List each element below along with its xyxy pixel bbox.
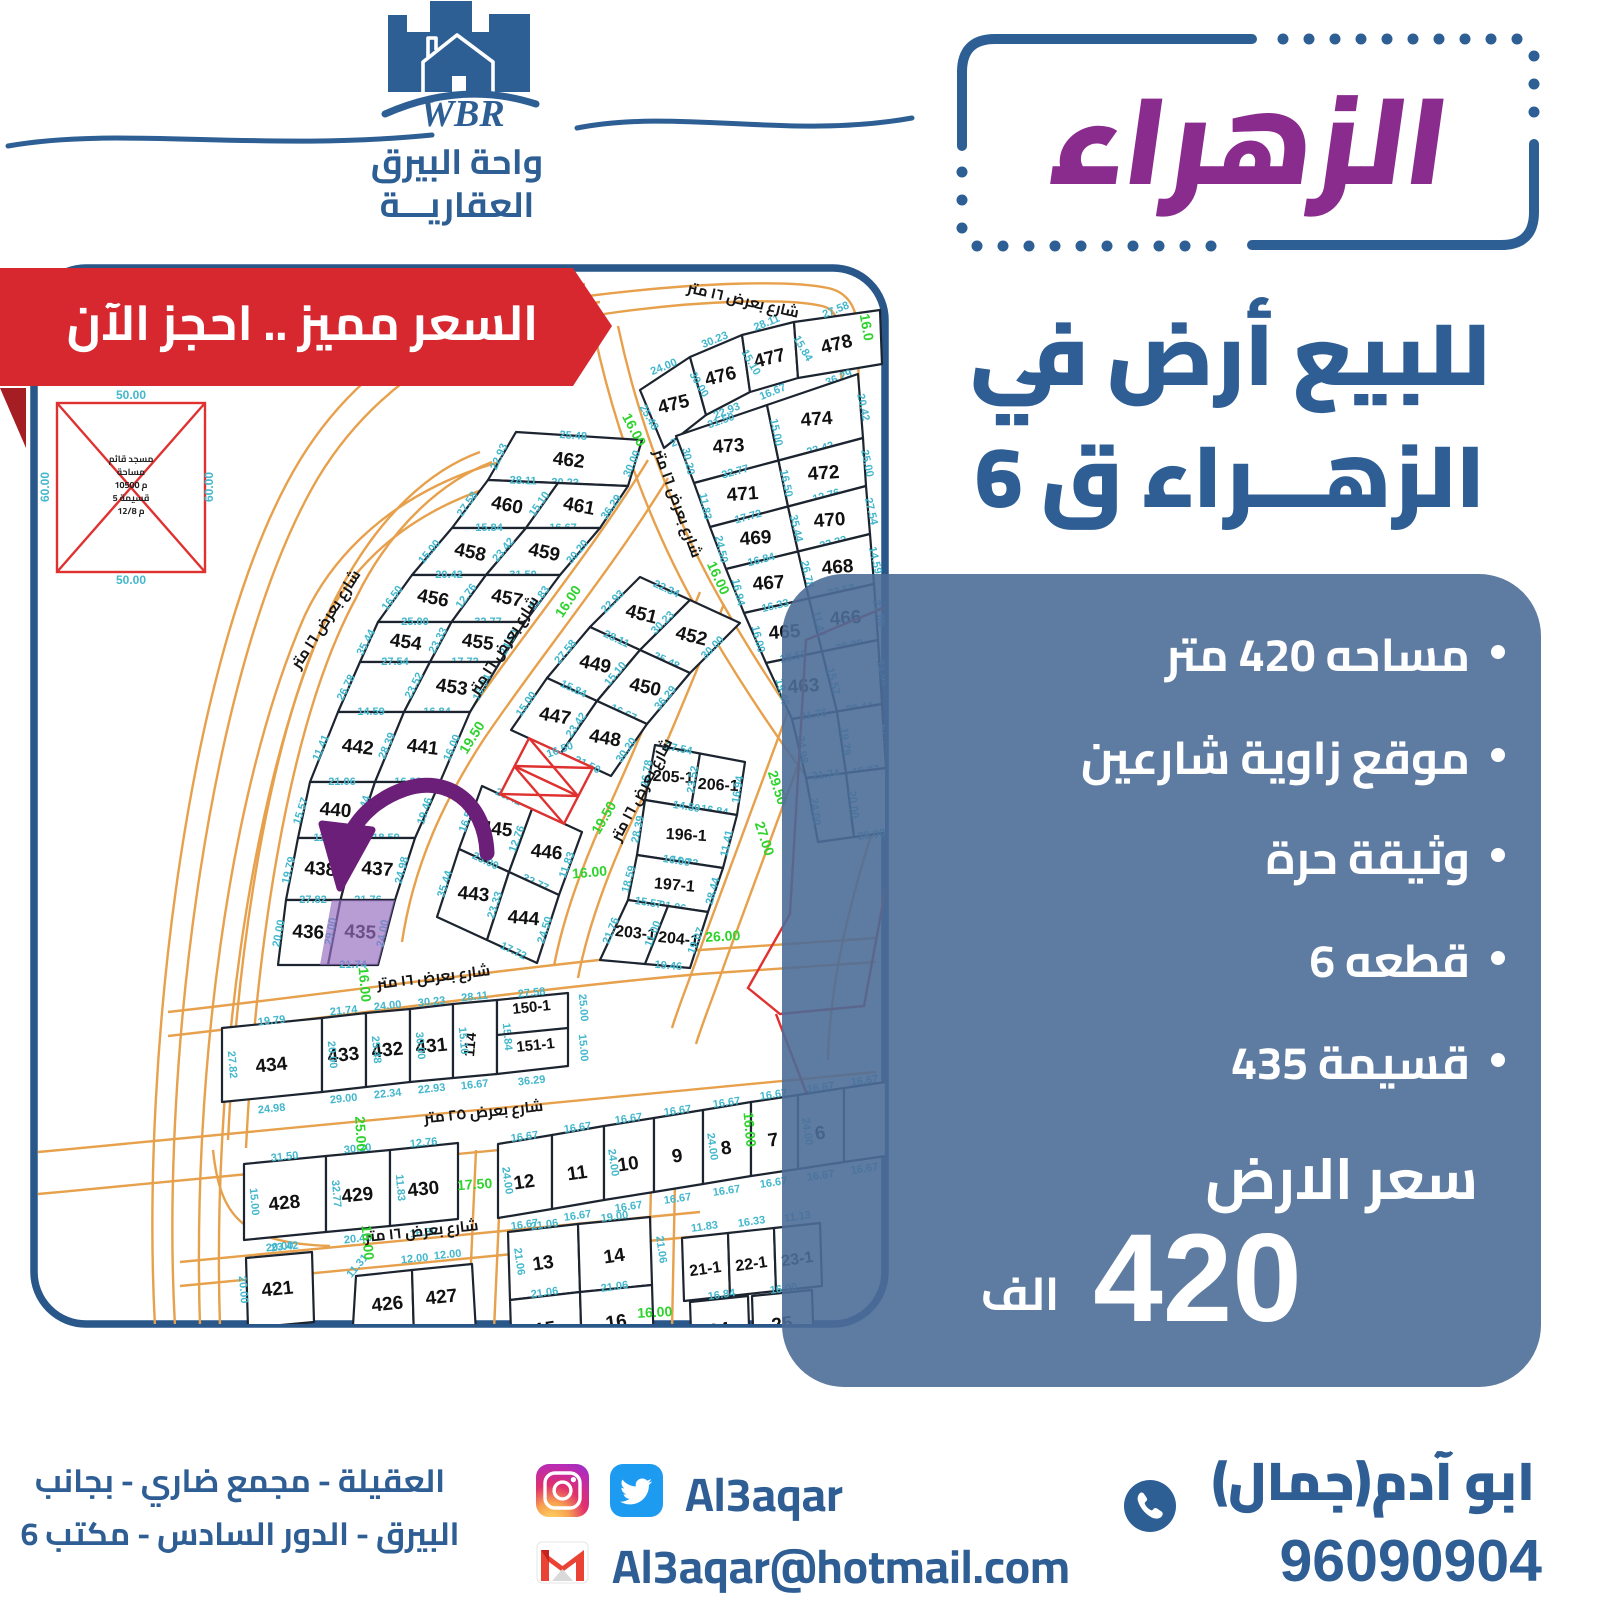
svg-text:12/8 م: 12/8 م — [117, 503, 144, 520]
svg-text:469: 469 — [739, 527, 772, 550]
svg-text:430: 430 — [407, 1177, 441, 1201]
svg-text:470: 470 — [813, 509, 846, 532]
svg-text:21.06: 21.06 — [328, 776, 356, 788]
svg-text:15.00: 15.00 — [247, 1188, 261, 1216]
svg-text:454: 454 — [389, 630, 424, 655]
svg-text:12: 12 — [512, 1171, 536, 1195]
svg-text:13: 13 — [531, 1252, 555, 1276]
svg-text:25.00: 25.00 — [352, 1116, 370, 1152]
svg-text:16: 16 — [604, 1311, 628, 1335]
svg-text:32.77: 32.77 — [329, 1180, 343, 1208]
svg-text:467: 467 — [752, 572, 785, 595]
svg-text:60.00: 60.00 — [202, 472, 216, 502]
svg-text:20.42: 20.42 — [435, 569, 463, 581]
svg-text:440: 440 — [319, 799, 352, 823]
svg-text:16.00: 16.00 — [358, 1224, 377, 1261]
svg-text:16.00: 16.00 — [637, 1303, 673, 1321]
svg-text:428: 428 — [268, 1191, 302, 1215]
svg-text:25.00: 25.00 — [401, 616, 429, 628]
svg-text:196-1: 196-1 — [665, 826, 707, 845]
svg-text:26.00: 26.00 — [705, 927, 741, 945]
svg-text:471: 471 — [726, 483, 760, 506]
svg-text:15.00: 15.00 — [576, 1034, 590, 1062]
svg-text:50.00: 50.00 — [116, 573, 146, 587]
svg-text:27.82: 27.82 — [225, 1051, 239, 1079]
svg-text:426: 426 — [371, 1292, 405, 1316]
svg-text:27.54: 27.54 — [381, 656, 409, 668]
svg-text:20.00: 20.00 — [236, 1276, 250, 1304]
svg-text:14.59: 14.59 — [357, 706, 385, 718]
svg-text:25.48: 25.48 — [369, 1036, 383, 1064]
svg-text:442: 442 — [341, 735, 375, 760]
svg-text:11: 11 — [566, 1162, 589, 1186]
svg-text:16.00: 16.00 — [740, 1111, 759, 1148]
svg-text:434: 434 — [255, 1053, 289, 1077]
svg-text:443: 443 — [457, 883, 490, 907]
svg-text:25.00: 25.00 — [576, 994, 590, 1022]
svg-text:16.00: 16.00 — [355, 966, 374, 1003]
svg-text:446: 446 — [530, 840, 564, 864]
svg-text:60.00: 60.00 — [38, 472, 52, 502]
svg-text:16.00: 16.00 — [571, 863, 608, 882]
svg-text:20.00: 20.00 — [325, 1041, 339, 1069]
svg-text:436: 436 — [292, 921, 325, 944]
svg-text:472: 472 — [807, 462, 840, 485]
svg-text:30.00: 30.00 — [413, 1032, 427, 1060]
svg-text:421: 421 — [261, 1277, 295, 1301]
svg-text:197-1: 197-1 — [653, 875, 695, 896]
svg-text:444: 444 — [507, 907, 541, 931]
svg-text:15: 15 — [533, 1318, 557, 1342]
svg-text:474: 474 — [800, 408, 834, 431]
svg-text:17.50: 17.50 — [457, 1175, 493, 1193]
svg-text:427: 427 — [425, 1285, 459, 1309]
svg-text:24: 24 — [707, 1319, 731, 1343]
svg-text:19.46: 19.46 — [654, 959, 682, 973]
svg-text:28.11: 28.11 — [509, 475, 536, 488]
svg-text:437: 437 — [361, 858, 394, 881]
svg-text:15.84: 15.84 — [475, 522, 503, 534]
svg-text:11.83: 11.83 — [393, 1174, 407, 1202]
svg-text:473: 473 — [712, 435, 745, 458]
svg-text:441: 441 — [406, 735, 440, 760]
svg-text:27.82: 27.82 — [299, 894, 327, 906]
svg-text:429: 429 — [341, 1183, 375, 1207]
svg-text:14: 14 — [602, 1245, 626, 1269]
svg-text:15.84: 15.84 — [500, 1023, 514, 1052]
svg-text:15.10: 15.10 — [456, 1027, 470, 1055]
